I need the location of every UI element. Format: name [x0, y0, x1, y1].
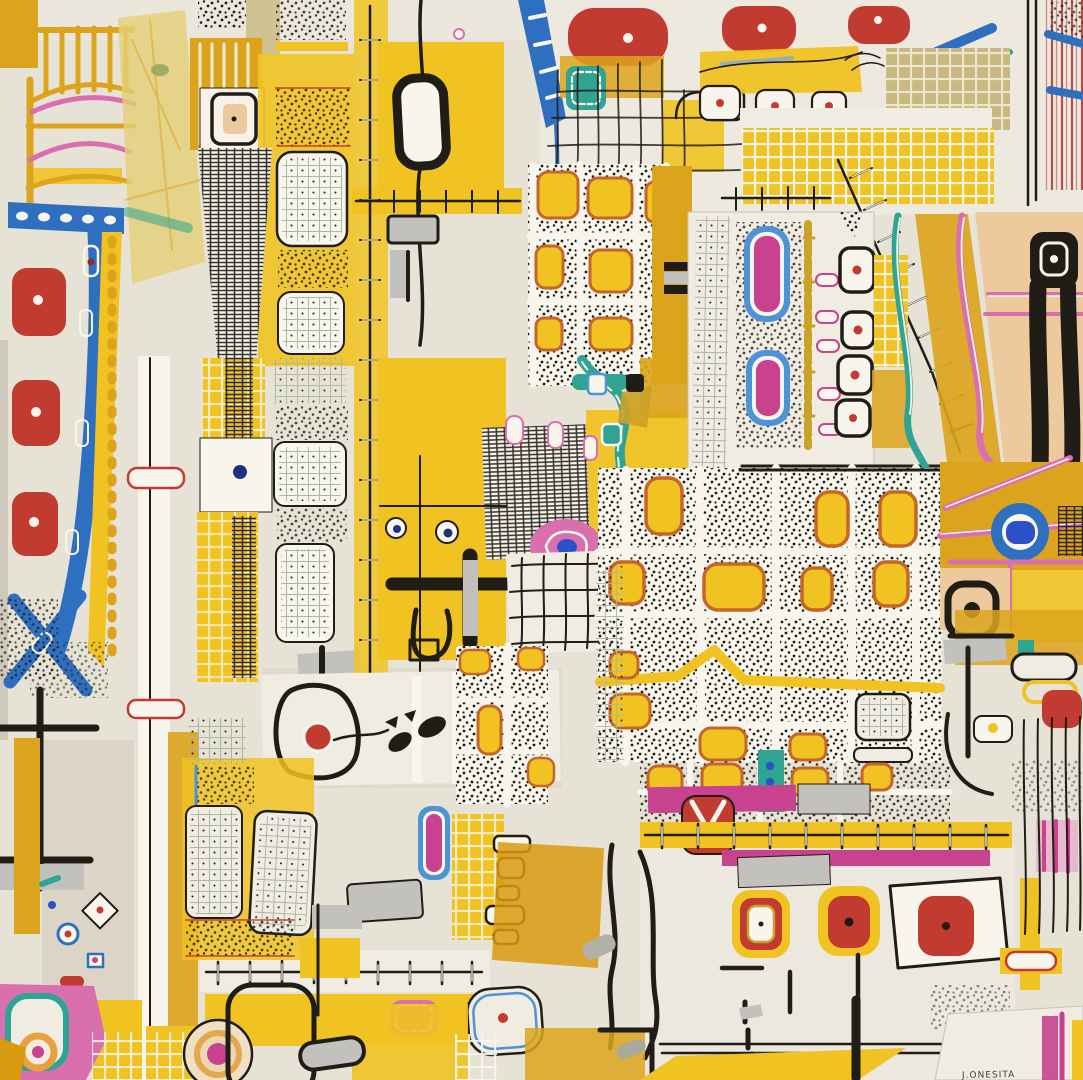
black-square-column	[836, 248, 874, 436]
black-bean	[396, 77, 448, 167]
icon-yellow-gold	[732, 890, 790, 958]
icon-yellow-red	[818, 886, 880, 956]
collage-painting: J.ONESITA	[0, 0, 1083, 1080]
quilt-stipple-panel	[528, 164, 670, 386]
artwork-canvas: J.ONESITA	[0, 0, 1083, 1080]
red-blob-right	[1042, 690, 1082, 728]
mini-map-panel	[456, 646, 554, 804]
red-blob	[848, 6, 910, 44]
yellow-cross-pill	[1006, 952, 1056, 970]
artist-signature: J.ONESITA	[961, 1070, 1016, 1080]
red-dot	[304, 723, 332, 751]
navy-dot	[233, 465, 247, 479]
icon-white-panel	[890, 878, 1008, 968]
rail-track	[232, 516, 256, 678]
